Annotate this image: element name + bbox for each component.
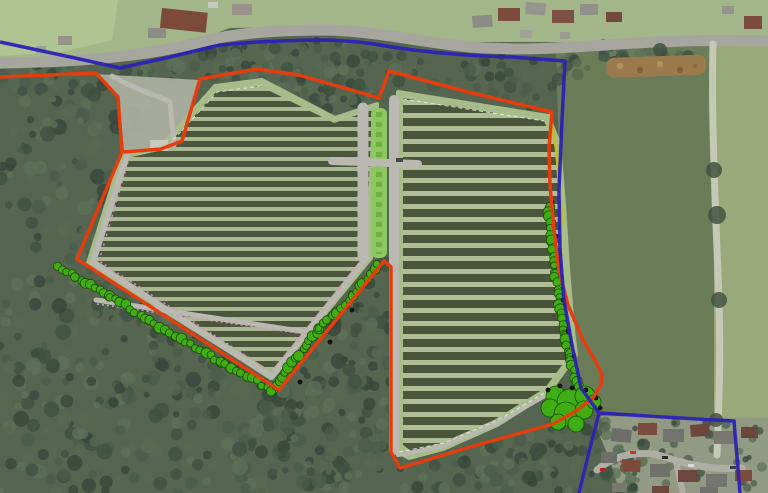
hedgerow-tree-icon xyxy=(706,162,722,178)
house xyxy=(498,8,520,21)
existing-tree-dot xyxy=(546,388,551,393)
house xyxy=(678,470,697,482)
hedgerow-tree-icon xyxy=(711,292,727,308)
house xyxy=(58,36,72,45)
house xyxy=(601,452,617,463)
house xyxy=(208,2,218,8)
house xyxy=(690,424,710,437)
aerial-site-plan xyxy=(0,0,768,493)
house xyxy=(525,2,546,15)
house xyxy=(232,4,252,15)
house xyxy=(621,459,641,472)
house xyxy=(560,32,570,39)
house xyxy=(714,431,735,444)
house xyxy=(580,4,598,15)
existing-tree-dot xyxy=(328,340,333,345)
car xyxy=(662,456,668,459)
vehicle xyxy=(396,158,403,162)
house xyxy=(741,427,758,438)
hedgerow-tree-icon xyxy=(708,206,726,224)
house xyxy=(606,12,622,22)
house xyxy=(612,483,627,492)
central-green-strip xyxy=(371,108,387,258)
house xyxy=(520,30,532,38)
car xyxy=(730,466,736,469)
hedgerow-tree-icon xyxy=(653,43,667,57)
house xyxy=(650,464,670,477)
house xyxy=(552,10,574,23)
house xyxy=(148,28,166,38)
house xyxy=(611,428,632,443)
house xyxy=(638,423,657,435)
existing-tree-dot xyxy=(350,308,355,313)
car xyxy=(688,464,694,467)
house xyxy=(663,429,684,442)
existing-tree-dot xyxy=(558,384,563,389)
house xyxy=(652,486,669,493)
field-heap xyxy=(606,55,707,78)
house xyxy=(700,487,718,493)
house xyxy=(722,6,734,14)
existing-tree-dot xyxy=(298,380,303,385)
house xyxy=(744,16,762,29)
site-plan-map xyxy=(0,0,768,493)
existing-tree-dot xyxy=(570,386,575,391)
car xyxy=(600,468,605,471)
house xyxy=(472,15,493,28)
car xyxy=(630,451,636,454)
crossing-track xyxy=(332,161,418,164)
house xyxy=(706,474,727,487)
